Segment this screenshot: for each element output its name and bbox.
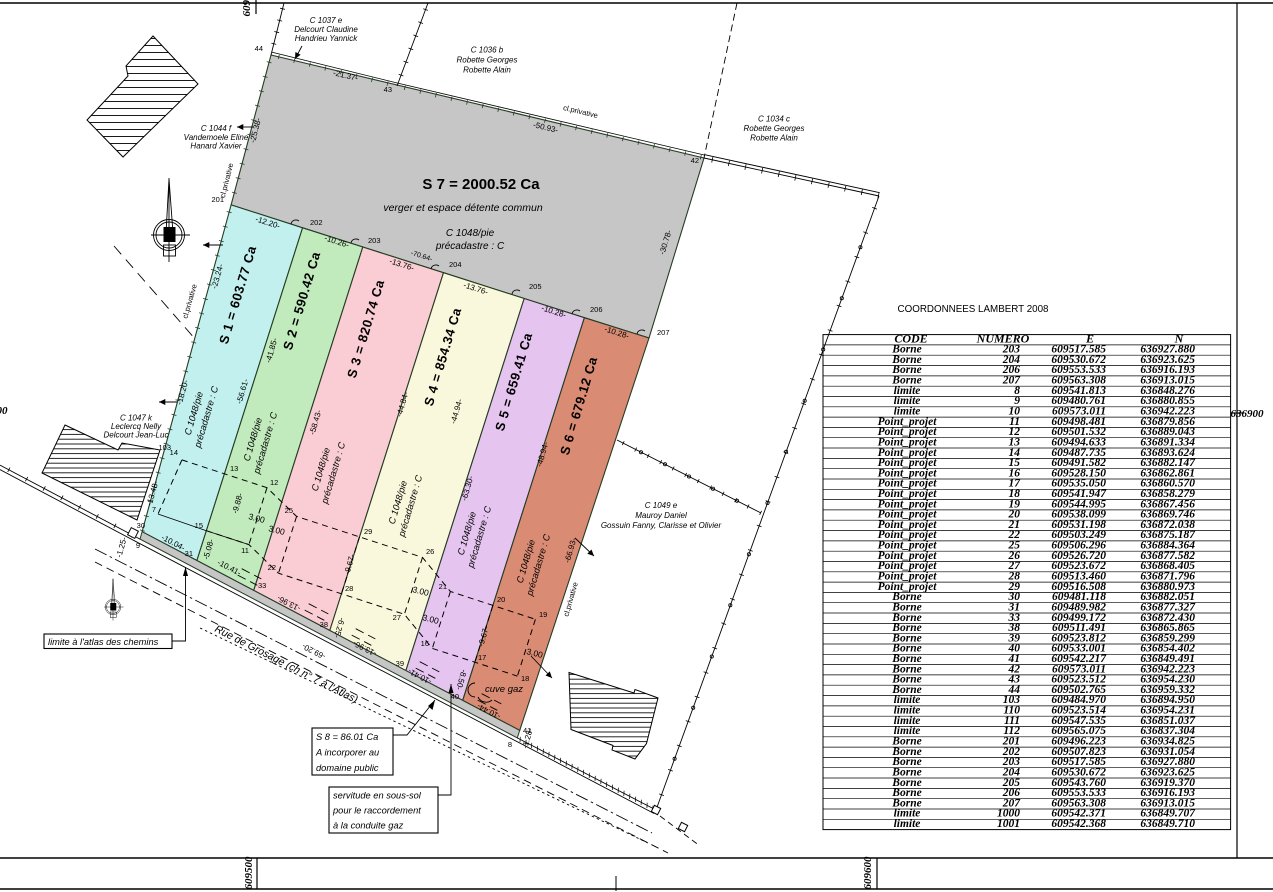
- svg-text:C 1049 e: C 1049 e: [645, 501, 678, 510]
- svg-text:8: 8: [508, 740, 512, 749]
- svg-text:Delcourt Jean-Luc: Delcourt Jean-Luc: [104, 431, 169, 440]
- svg-text:Handrieu Yannick: Handrieu Yannick: [295, 34, 358, 43]
- svg-text:26: 26: [426, 547, 434, 556]
- svg-text:40: 40: [451, 692, 459, 701]
- svg-text:22: 22: [268, 563, 276, 572]
- svg-text:15: 15: [195, 521, 203, 530]
- svg-text:609600: 609600: [862, 856, 874, 890]
- svg-text:609500: 609500: [243, 856, 255, 890]
- svg-text:39: 39: [396, 659, 404, 668]
- svg-text:29: 29: [364, 527, 372, 536]
- svg-text:Gossuin Fanny, Clarisse et Oli: Gossuin Fanny, Clarisse et Olivier: [601, 521, 722, 530]
- svg-text:204: 204: [449, 260, 462, 269]
- svg-text:1001: 1001: [997, 818, 1020, 830]
- svg-text:25: 25: [285, 506, 293, 515]
- svg-text:pour le raccordement: pour le raccordement: [332, 806, 421, 816]
- svg-text:30: 30: [137, 521, 145, 530]
- svg-text:C 1036 b: C 1036 b: [471, 46, 504, 55]
- svg-text:à la conduite gaz: à la conduite gaz: [333, 821, 404, 831]
- svg-text:205: 205: [529, 282, 542, 291]
- svg-text:servitude en sous-sol: servitude en sous-sol: [333, 791, 422, 801]
- svg-text:31: 31: [185, 549, 193, 558]
- svg-text:C 1044 f: C 1044 f: [201, 124, 232, 133]
- svg-text:42: 42: [691, 156, 699, 165]
- svg-text:203: 203: [368, 236, 381, 245]
- svg-text:Hanard Xavier: Hanard Xavier: [190, 142, 241, 151]
- svg-text:précadastre : C: précadastre : C: [435, 241, 505, 252]
- svg-text:38: 38: [320, 620, 328, 629]
- svg-text:33: 33: [258, 581, 266, 590]
- svg-text:S 7 = 2000.52 Ca: S 7 = 2000.52 Ca: [422, 176, 540, 193]
- svg-text:Robette Georges: Robette Georges: [457, 56, 518, 65]
- svg-text:COORDONNEES LAMBERT 2008: COORDONNEES LAMBERT 2008: [898, 304, 1050, 315]
- svg-text:636900: 636900: [1231, 408, 1265, 420]
- svg-text:11: 11: [241, 546, 249, 555]
- svg-text:domaine public: domaine public: [316, 763, 379, 773]
- svg-text:cuve gaz: cuve gaz: [485, 684, 523, 695]
- svg-text:21: 21: [439, 582, 447, 591]
- svg-text:44: 44: [255, 44, 263, 53]
- svg-text:207: 207: [657, 328, 670, 337]
- svg-text:Delcourt Claudine: Delcourt Claudine: [294, 25, 358, 34]
- svg-text:206: 206: [590, 305, 603, 314]
- svg-text:17: 17: [478, 653, 486, 662]
- svg-text:20: 20: [497, 595, 505, 604]
- svg-text:19: 19: [539, 610, 547, 619]
- svg-text:verger et espace détente commu: verger et espace détente commun: [383, 202, 543, 214]
- svg-text:limite à l'atlas des chemins: limite à l'atlas des chemins: [48, 637, 159, 647]
- svg-text:S 8 = 86.01 Ca: S 8 = 86.01 Ca: [316, 732, 378, 742]
- svg-text:18: 18: [521, 674, 529, 683]
- svg-text:C 1037 e: C 1037 e: [310, 16, 343, 25]
- svg-text:16: 16: [421, 639, 429, 648]
- svg-text:C 1048/pie: C 1048/pie: [446, 228, 495, 239]
- svg-text:Robette Alain: Robette Alain: [750, 134, 798, 143]
- svg-text:28: 28: [345, 584, 353, 593]
- svg-text:636849.710: 636849.710: [1140, 818, 1195, 830]
- svg-text:9: 9: [136, 541, 140, 550]
- svg-text:14: 14: [170, 448, 178, 457]
- svg-text:609542.368: 609542.368: [1051, 818, 1106, 830]
- svg-text:C 1034 c: C 1034 c: [758, 115, 790, 124]
- svg-text:Robette Georges: Robette Georges: [744, 124, 805, 133]
- svg-text:Robette Alain: Robette Alain: [463, 66, 511, 75]
- svg-text:Vandemoele Eline: Vandemoele Eline: [184, 133, 249, 142]
- svg-text:13: 13: [230, 464, 238, 473]
- svg-text:609500: 609500: [241, 0, 253, 17]
- svg-text:27: 27: [393, 613, 401, 622]
- svg-text:limite: limite: [894, 818, 921, 830]
- svg-text:Mauroy Daniel: Mauroy Daniel: [635, 511, 687, 520]
- svg-text:12: 12: [270, 478, 278, 487]
- svg-text:202: 202: [310, 218, 323, 227]
- svg-text:43: 43: [384, 85, 392, 94]
- svg-text:636900: 636900: [0, 405, 8, 417]
- svg-text:A incorporer au: A incorporer au: [315, 748, 379, 758]
